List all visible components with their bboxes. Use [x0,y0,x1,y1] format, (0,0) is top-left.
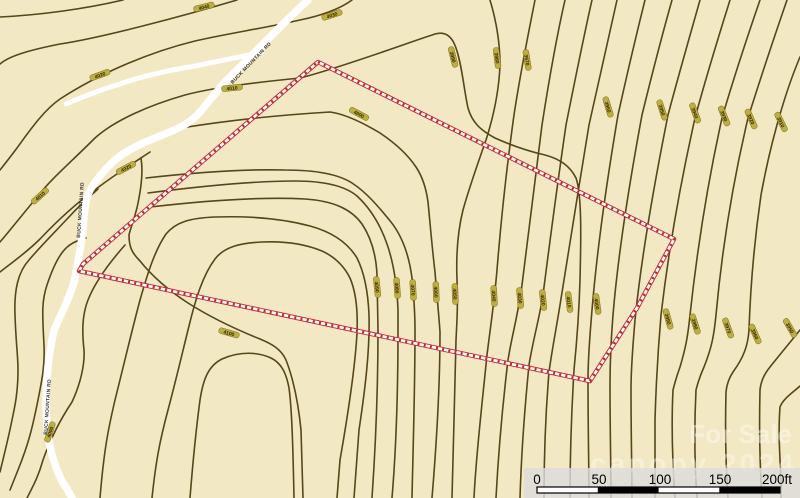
svg-text:4090: 4090 [373,281,380,293]
svg-text:100: 100 [649,472,672,487]
svg-text:4020: 4020 [94,71,107,81]
svg-text:3990: 3990 [663,313,672,326]
svg-text:3980: 3980 [492,52,499,64]
svg-text:4020: 4020 [539,294,546,306]
svg-text:For Sale: For Sale [689,419,792,449]
svg-text:3970: 3970 [522,54,530,66]
svg-text:4040: 4040 [490,290,497,302]
svg-text:4070: 4070 [409,284,416,296]
svg-text:BUCK MOUNTAIN RD: BUCK MOUNTAIN RD [230,41,273,85]
svg-text:3960: 3960 [603,101,612,114]
svg-text:4010: 4010 [226,85,238,92]
svg-text:4050: 4050 [451,288,457,300]
svg-text:3980: 3980 [690,318,699,331]
svg-text:4010: 4010 [564,296,571,308]
svg-text:3930: 3930 [718,110,728,123]
svg-text:4060: 4060 [432,286,438,298]
svg-text:4030: 4030 [516,292,523,304]
svg-text:4040: 4040 [198,4,210,13]
svg-text:200ft: 200ft [762,472,792,487]
svg-text:3970: 3970 [722,322,732,335]
svg-text:0: 0 [533,472,541,487]
svg-text:4000: 4000 [592,298,600,310]
svg-text:4080: 4080 [393,282,400,294]
svg-text:4100: 4100 [223,329,236,338]
svg-text:3950: 3950 [657,104,666,117]
svg-text:3990: 3990 [448,51,457,63]
svg-text:50: 50 [591,472,606,487]
svg-text:150: 150 [709,472,732,487]
